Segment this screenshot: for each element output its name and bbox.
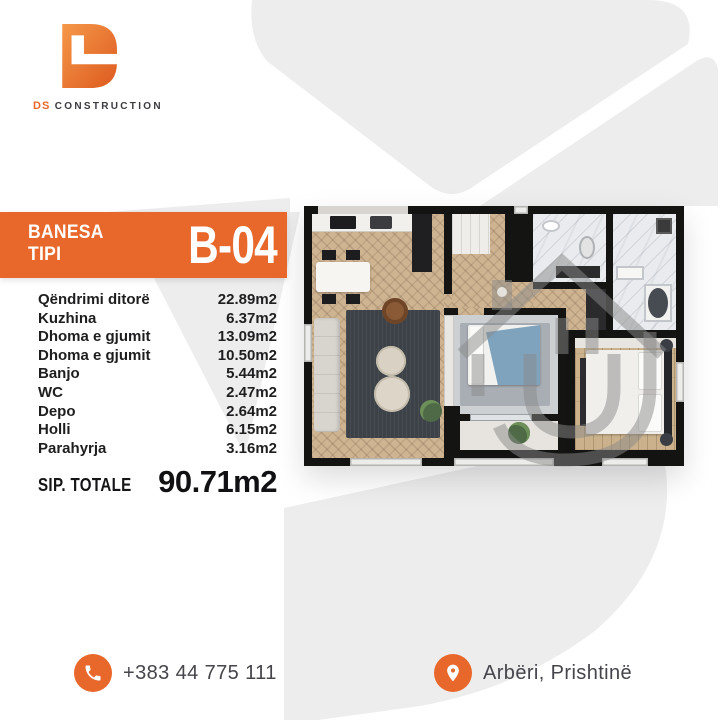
room-label: Dhoma e gjumit — [38, 347, 151, 366]
window — [350, 458, 422, 466]
kitchen-window — [318, 206, 408, 214]
tall-cabinet — [412, 214, 432, 272]
room-area: 2.64m2 — [226, 403, 277, 422]
room-label: Parahyrja — [38, 440, 106, 459]
dining-chair — [322, 294, 336, 304]
room-row: Kuzhina 6.37m2 — [38, 310, 277, 329]
room-area: 5.44m2 — [226, 365, 277, 384]
room-label: Dhoma e gjumit — [38, 328, 151, 347]
location-text: Arbëri, Prishtinë — [483, 662, 632, 685]
coffee-table — [374, 376, 410, 412]
plant — [420, 400, 442, 422]
room-label: Qëndrimi ditorë — [38, 291, 150, 310]
room-label: Holli — [38, 421, 71, 440]
plan-logo-watermark-icon — [444, 236, 694, 474]
ds-monogram-icon — [55, 24, 117, 88]
location-pin-icon — [434, 654, 472, 692]
room-row: Banjo 5.44m2 — [38, 365, 277, 384]
room-row: Depo 2.64m2 — [38, 403, 277, 422]
kitchen-sink — [370, 216, 392, 229]
room-row: Dhoma e gjumit 13.09m2 — [38, 328, 277, 347]
room-row: Holli 6.15m2 — [38, 421, 277, 440]
phone-contact[interactable]: +383 44 775 111 — [74, 654, 277, 692]
room-area: 10.50m2 — [218, 347, 277, 366]
entry-door-gap — [514, 206, 528, 214]
room-label: WC — [38, 384, 63, 403]
phone-icon — [74, 654, 112, 692]
room-row: Dhoma e gjumit 10.50m2 — [38, 347, 277, 366]
room-label: Banjo — [38, 365, 80, 384]
dining-chair — [346, 294, 360, 304]
dining-table — [316, 262, 370, 292]
wc-sink — [542, 220, 560, 232]
apartment-type-banner: BANESA TIPI B-04 — [0, 212, 287, 278]
room-row: Parahyrja 3.16m2 — [38, 440, 277, 459]
location-contact[interactable]: Arbëri, Prishtinë — [434, 654, 632, 692]
room-label: Depo — [38, 403, 76, 422]
armchair — [382, 298, 408, 324]
room-area: 22.89m2 — [218, 291, 277, 310]
banner-title-line1: BANESA — [28, 221, 104, 243]
floor-plan — [304, 206, 684, 466]
banner-title-line2: TIPI — [28, 243, 104, 265]
window — [304, 324, 312, 362]
sofa — [314, 318, 340, 432]
brand-name-rest: CONSTRUCTION — [55, 101, 163, 112]
cooktop — [330, 216, 356, 229]
room-area: 6.37m2 — [226, 310, 277, 329]
brand-name-accent: DS — [33, 100, 50, 112]
coffee-table — [376, 346, 406, 376]
room-area: 13.09m2 — [218, 328, 277, 347]
room-label: Kuzhina — [38, 310, 96, 329]
phone-number: +383 44 775 111 — [123, 662, 277, 685]
shower — [656, 218, 672, 234]
room-row: Qëndrimi ditorë 22.89m2 — [38, 291, 277, 310]
unit-code: B-04 — [188, 216, 277, 276]
brand-name: DS CONSTRUCTION — [33, 96, 163, 114]
room-area-list: Qëndrimi ditorë 22.89m2 Kuzhina 6.37m2 D… — [38, 291, 277, 458]
room-row: WC 2.47m2 — [38, 384, 277, 403]
dining-chair — [346, 250, 360, 260]
room-area: 6.15m2 — [226, 421, 277, 440]
total-area-row: SIP. TOTALE 90.71m2 — [38, 468, 277, 500]
banner-title: BANESA TIPI — [28, 221, 104, 265]
total-label: SIP. TOTALE — [38, 475, 132, 500]
dining-chair — [322, 250, 336, 260]
room-area: 3.16m2 — [226, 440, 277, 459]
total-value: 90.71m2 — [158, 464, 277, 500]
room-area: 2.47m2 — [226, 384, 277, 403]
